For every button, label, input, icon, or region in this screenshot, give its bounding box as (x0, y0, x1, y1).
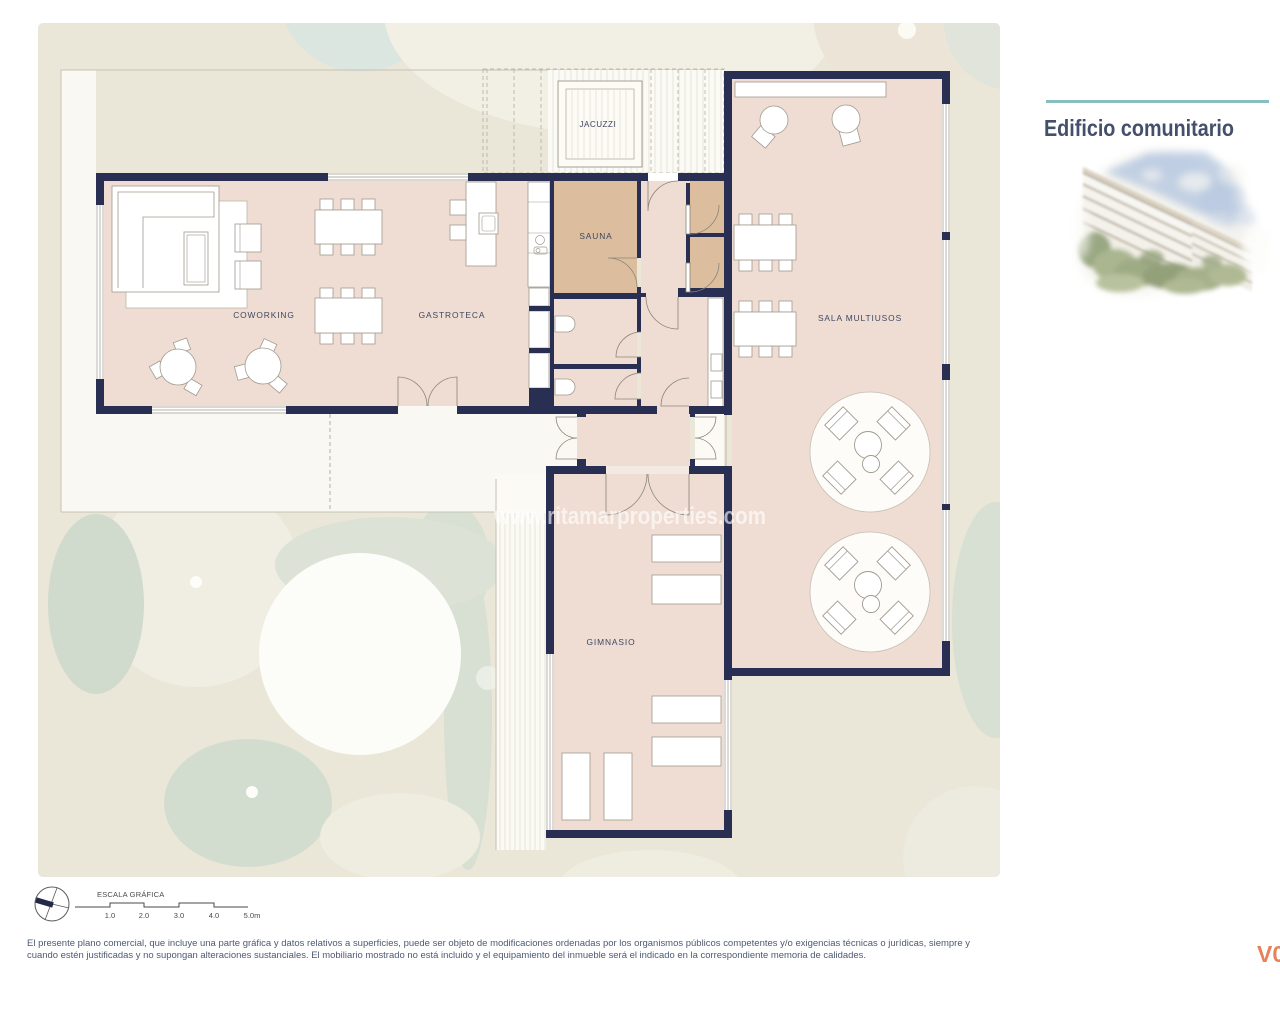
svg-text:5.0m: 5.0m (244, 911, 261, 920)
svg-text:Edificio comunitario: Edificio comunitario (1044, 115, 1234, 141)
svg-text:ESCALA GRÁFICA: ESCALA GRÁFICA (97, 890, 164, 899)
svg-text:2.0: 2.0 (139, 911, 149, 920)
svg-text:El presente plano comercial, q: El presente plano comercial, que incluye… (27, 938, 971, 948)
svg-text:COWORKING: COWORKING (233, 310, 295, 320)
svg-text:SAUNA: SAUNA (579, 231, 612, 241)
svg-text:1.0: 1.0 (105, 911, 115, 920)
svg-text:GASTROTECA: GASTROTECA (419, 310, 486, 320)
svg-text:3.0: 3.0 (174, 911, 184, 920)
svg-text:cuando estén justificadas y no: cuando estén justificadas y no supongan … (27, 950, 866, 960)
svg-text:SALA MULTIUSOS: SALA MULTIUSOS (818, 313, 902, 323)
svg-text:V0: V0 (1257, 941, 1280, 967)
svg-text:JACUZZI: JACUZZI (580, 120, 617, 129)
svg-text:www.ritamarproperties.com: www.ritamarproperties.com (493, 503, 766, 530)
svg-text:4.0: 4.0 (209, 911, 219, 920)
svg-text:GIMNASIO: GIMNASIO (586, 637, 635, 647)
